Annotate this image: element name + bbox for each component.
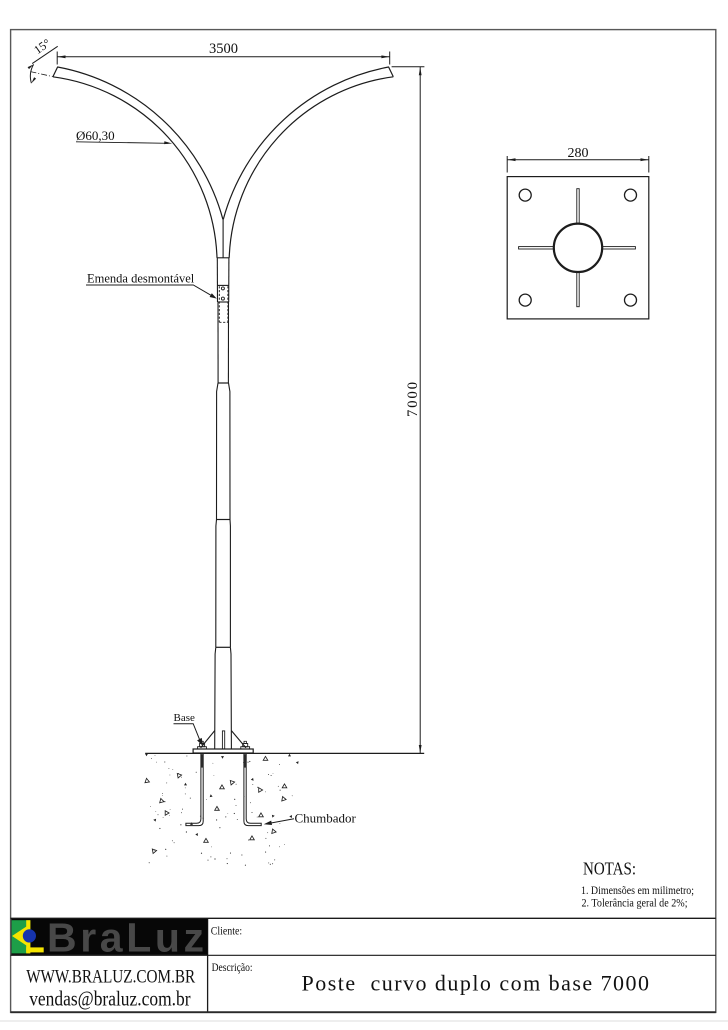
svg-text:2. Tolerância geral de 2%;: 2. Tolerância geral de 2%; xyxy=(582,898,688,910)
svg-text:Chumbador: Chumbador xyxy=(295,810,357,825)
svg-text:Emenda desmontável: Emenda desmontável xyxy=(87,272,195,286)
svg-text:Poste curvo duplo com base 70: Poste curvo duplo com base 7000 xyxy=(302,970,650,995)
svg-text:Cliente:: Cliente: xyxy=(211,924,243,938)
svg-text:3500: 3500 xyxy=(209,41,238,57)
svg-text:Descrição:: Descrição: xyxy=(212,960,253,974)
svg-text:NOTAS:: NOTAS: xyxy=(583,858,636,878)
svg-text:Ø60,30: Ø60,30 xyxy=(76,128,115,143)
svg-text:1. Dimensões em milimetro;: 1. Dimensões em milimetro; xyxy=(581,885,694,897)
svg-text:vendas@braluz.com.br: vendas@braluz.com.br xyxy=(29,988,191,1011)
svg-text:Base: Base xyxy=(174,712,196,724)
svg-text:WWW.BRALUZ.COM.BR: WWW.BRALUZ.COM.BR xyxy=(26,966,195,987)
svg-text:280: 280 xyxy=(568,146,589,161)
